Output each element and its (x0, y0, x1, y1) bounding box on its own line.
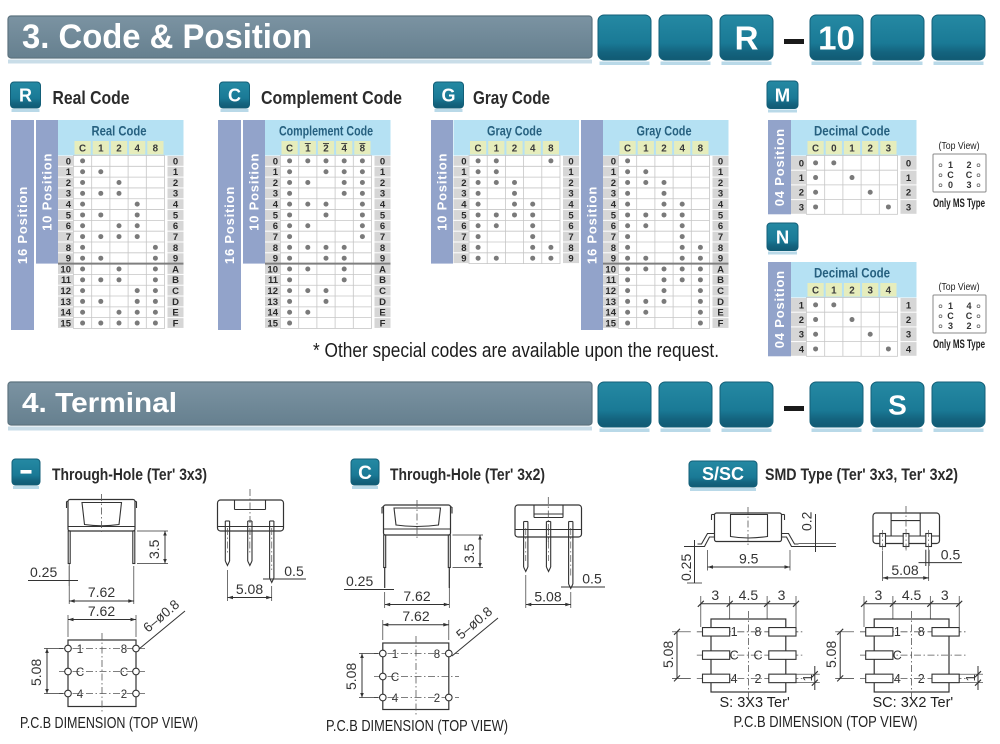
svg-text:0: 0 (173, 156, 178, 167)
svg-text:A: A (172, 264, 179, 275)
svg-text:2: 2 (66, 178, 71, 189)
svg-text:C: C (358, 463, 372, 484)
svg-text:8: 8 (461, 243, 466, 254)
svg-text:1: 1 (906, 173, 912, 184)
svg-text:C: C (391, 672, 399, 684)
svg-text:Through-Hole (Ter' 3x2): Through-Hole (Ter' 3x2) (390, 465, 545, 484)
svg-text:16 Position: 16 Position (222, 186, 237, 264)
svg-text:Gray Code: Gray Code (487, 123, 542, 139)
svg-text:7.62: 7.62 (403, 588, 430, 604)
svg-text:Through-Hole (Ter' 3x3): Through-Hole (Ter' 3x3) (52, 465, 207, 484)
svg-text:7: 7 (273, 232, 278, 243)
svg-text:2: 2 (611, 178, 616, 189)
svg-text:10 Position: 10 Position (40, 153, 55, 231)
svg-text:2: 2 (380, 178, 385, 189)
svg-text:8: 8 (718, 243, 723, 254)
svg-text:0.25: 0.25 (346, 573, 373, 589)
svg-text:4: 4 (392, 693, 399, 705)
svg-text:8: 8 (173, 243, 178, 254)
svg-text:4: 4 (341, 144, 347, 155)
svg-text:5.08: 5.08 (28, 659, 44, 686)
svg-text:0: 0 (718, 156, 723, 167)
svg-text:3: 3 (867, 286, 873, 297)
svg-text:C: C (286, 144, 293, 155)
svg-text:5.08: 5.08 (891, 562, 918, 578)
svg-text:5: 5 (66, 210, 72, 221)
svg-text:C: C (76, 667, 84, 679)
svg-text:1: 1 (799, 173, 805, 184)
svg-text:8: 8 (153, 144, 159, 155)
svg-text:0: 0 (611, 156, 616, 167)
svg-text:1: 1 (643, 144, 649, 155)
svg-text:5.08: 5.08 (823, 641, 839, 668)
svg-text:8: 8 (611, 243, 616, 254)
svg-text:2: 2 (867, 144, 873, 155)
svg-text:0: 0 (906, 158, 911, 169)
svg-text:4.5: 4.5 (902, 587, 922, 603)
svg-text:8: 8 (66, 243, 71, 254)
svg-text:4: 4 (568, 200, 574, 211)
svg-text:SMD Type (Ter' 3x3, Ter' 3x2): SMD Type (Ter' 3x3, Ter' 3x2) (765, 465, 958, 484)
svg-text:C: C (947, 311, 954, 321)
svg-text:3: 3 (906, 202, 911, 213)
svg-text:3: 3 (886, 144, 892, 155)
svg-text:4.5: 4.5 (739, 587, 759, 603)
svg-text:R: R (735, 19, 759, 56)
svg-text:5.08: 5.08 (534, 589, 561, 605)
svg-text:4: 4 (77, 689, 84, 701)
svg-text:16 Position: 16 Position (15, 186, 30, 264)
svg-text:7: 7 (718, 232, 723, 243)
svg-text:C: C (475, 144, 482, 155)
svg-text:Real Code: Real Code (92, 123, 147, 139)
svg-text:7: 7 (173, 232, 178, 243)
svg-text:G: G (441, 85, 455, 105)
svg-text:3: 3 (380, 189, 385, 200)
svg-text:D: D (717, 297, 724, 308)
svg-text:11: 11 (61, 275, 72, 286)
svg-text:1: 1 (611, 167, 617, 178)
svg-text:C: C (172, 286, 179, 297)
svg-text:1: 1 (305, 144, 311, 155)
svg-text:3: 3 (966, 180, 971, 190)
svg-text:2: 2 (966, 160, 971, 170)
svg-text:Gray Code: Gray Code (637, 123, 692, 139)
svg-text:3: 3 (611, 189, 616, 200)
svg-text:2: 2 (799, 315, 804, 326)
svg-text:B: B (172, 275, 179, 286)
svg-text:6: 6 (461, 221, 466, 232)
svg-text:9: 9 (568, 254, 573, 265)
svg-text:P.C.B DIMENSION (TOP VIEW): P.C.B DIMENSION (TOP VIEW) (734, 714, 918, 731)
svg-text:C: C (228, 85, 241, 105)
svg-text:2: 2 (273, 178, 278, 189)
svg-text:Only MS Type: Only MS Type (933, 339, 985, 351)
svg-text:8: 8 (380, 243, 385, 254)
svg-text:2: 2 (121, 689, 127, 701)
svg-text:2: 2 (461, 178, 466, 189)
svg-text:A: A (717, 264, 724, 275)
svg-text:0.5: 0.5 (284, 563, 304, 579)
svg-text:Gray Code: Gray Code (473, 87, 550, 108)
svg-text:1: 1 (948, 160, 953, 170)
svg-text:1: 1 (800, 674, 815, 681)
svg-text:2: 2 (512, 144, 518, 155)
svg-text:4: 4 (273, 200, 279, 211)
svg-text:3: 3 (568, 189, 573, 200)
svg-text:C: C (947, 170, 954, 180)
svg-text:Decimal Code: Decimal Code (814, 123, 890, 139)
svg-text:6: 6 (611, 221, 616, 232)
svg-text:E: E (717, 308, 723, 319)
svg-text:3.5: 3.5 (461, 543, 477, 563)
svg-text:6: 6 (718, 221, 723, 232)
svg-text:C: C (624, 144, 631, 155)
svg-text:8: 8 (360, 144, 366, 155)
svg-text:1: 1 (718, 167, 724, 178)
svg-text:C: C (753, 649, 762, 663)
svg-text:4: 4 (679, 144, 685, 155)
svg-text:14: 14 (60, 308, 71, 319)
svg-text:B: B (717, 275, 724, 286)
svg-text:5.08: 5.08 (236, 581, 263, 597)
svg-text:11: 11 (268, 275, 279, 286)
svg-text:* Other special codes are avai: * Other special codes are available upon… (313, 340, 719, 362)
svg-text:15: 15 (60, 318, 71, 329)
svg-text:1: 1 (906, 300, 912, 311)
svg-text:14: 14 (267, 308, 278, 319)
svg-text:D: D (172, 297, 179, 308)
svg-text:3. Code & Position: 3. Code & Position (22, 18, 312, 56)
svg-text:04 Position: 04 Position (772, 270, 787, 348)
svg-text:8: 8 (918, 625, 925, 639)
svg-text:6–ø0.8: 6–ø0.8 (140, 597, 182, 636)
svg-text:2: 2 (173, 178, 178, 189)
svg-text:Complement Code: Complement Code (261, 87, 402, 108)
svg-text:4. Terminal: 4. Terminal (22, 387, 177, 418)
svg-text:1: 1 (273, 167, 279, 178)
svg-text:1: 1 (494, 144, 500, 155)
svg-text:C: C (893, 649, 902, 663)
svg-text:S: 3X3 Ter': S: 3X3 Ter' (720, 695, 790, 711)
svg-text:F: F (380, 318, 386, 329)
svg-text:0: 0 (273, 156, 278, 167)
svg-text:5.08: 5.08 (343, 663, 359, 690)
svg-text:4: 4 (894, 672, 901, 686)
svg-text:1: 1 (894, 625, 901, 639)
svg-text:0: 0 (568, 156, 573, 167)
svg-text:2: 2 (966, 321, 971, 331)
svg-text:12: 12 (267, 286, 278, 297)
svg-text:1: 1 (77, 644, 83, 656)
svg-text:3: 3 (799, 202, 804, 213)
svg-text:Decimal Code: Decimal Code (814, 265, 890, 281)
svg-text:5.08: 5.08 (660, 641, 676, 668)
svg-text:1: 1 (173, 167, 179, 178)
svg-text:1: 1 (731, 625, 738, 639)
svg-text:3: 3 (711, 587, 719, 603)
svg-text:S/SC: S/SC (702, 464, 744, 484)
svg-text:1: 1 (568, 167, 574, 178)
svg-text:4: 4 (731, 672, 738, 686)
svg-text:8: 8 (568, 243, 573, 254)
svg-text:6: 6 (568, 221, 573, 232)
svg-text:4: 4 (718, 200, 724, 211)
svg-text:10: 10 (267, 264, 278, 275)
svg-text:R: R (19, 85, 32, 105)
svg-text:6: 6 (66, 221, 71, 232)
svg-text:1: 1 (799, 300, 805, 311)
svg-text:1: 1 (98, 144, 104, 155)
svg-text:5: 5 (380, 210, 386, 221)
svg-text:3: 3 (718, 189, 723, 200)
svg-text:0: 0 (948, 180, 953, 190)
svg-text:7: 7 (568, 232, 573, 243)
svg-text:3: 3 (948, 321, 953, 331)
svg-text:(Top View): (Top View) (939, 140, 980, 152)
svg-text:0: 0 (380, 156, 385, 167)
svg-text:2: 2 (849, 286, 855, 297)
svg-text:0: 0 (831, 144, 837, 155)
svg-text:5: 5 (611, 210, 617, 221)
svg-text:7: 7 (380, 232, 385, 243)
svg-text:8: 8 (755, 625, 762, 639)
svg-text:13: 13 (60, 297, 71, 308)
svg-text:4: 4 (886, 286, 892, 297)
svg-text:Only MS Type: Only MS Type (933, 198, 985, 210)
svg-text:13: 13 (267, 297, 278, 308)
svg-text:6: 6 (173, 221, 178, 232)
svg-text:0: 0 (461, 156, 466, 167)
svg-text:04 Position: 04 Position (772, 128, 787, 206)
svg-text:10: 10 (818, 19, 855, 56)
svg-text:2: 2 (434, 693, 440, 705)
svg-text:10 Position: 10 Position (247, 153, 262, 231)
svg-text:4: 4 (173, 200, 179, 211)
svg-text:5: 5 (273, 210, 279, 221)
svg-text:7.62: 7.62 (88, 584, 115, 600)
svg-text:C: C (717, 286, 724, 297)
svg-text:2: 2 (906, 188, 911, 199)
svg-text:C: C (812, 286, 819, 297)
svg-text:2: 2 (116, 144, 122, 155)
svg-text:4: 4 (611, 200, 617, 211)
svg-text:7.62: 7.62 (88, 603, 115, 619)
svg-text:4: 4 (799, 344, 805, 355)
svg-text:M: M (775, 84, 790, 105)
svg-text:5: 5 (173, 210, 179, 221)
svg-text:15: 15 (605, 318, 616, 329)
svg-text:N: N (776, 226, 789, 247)
svg-text:S: S (888, 390, 907, 421)
svg-text:1: 1 (66, 167, 72, 178)
svg-text:7.62: 7.62 (402, 608, 429, 624)
svg-text:1: 1 (849, 144, 855, 155)
svg-text:2: 2 (906, 315, 911, 326)
svg-text:3: 3 (875, 587, 883, 603)
svg-text:3: 3 (461, 189, 466, 200)
svg-text:2: 2 (661, 144, 667, 155)
svg-text:SC: 3X2 Ter': SC: 3X2 Ter' (873, 695, 954, 711)
svg-text:5: 5 (718, 210, 724, 221)
svg-text:E: E (172, 308, 178, 319)
svg-text:E: E (379, 308, 385, 319)
svg-text:3: 3 (799, 330, 804, 341)
svg-text:F: F (718, 318, 724, 329)
svg-text:4: 4 (380, 200, 386, 211)
svg-text:0: 0 (799, 158, 804, 169)
svg-text:P.C.B DIMENSION (TOP VIEW): P.C.B DIMENSION (TOP VIEW) (326, 718, 508, 735)
svg-text:C: C (812, 144, 819, 155)
svg-text:4: 4 (906, 344, 912, 355)
svg-text:11: 11 (606, 275, 617, 286)
svg-text:13: 13 (605, 297, 616, 308)
svg-text:5: 5 (461, 210, 467, 221)
svg-text:10: 10 (605, 264, 616, 275)
svg-text:3: 3 (778, 587, 786, 603)
svg-text:0.2: 0.2 (799, 511, 815, 531)
svg-text:Real Code: Real Code (53, 87, 130, 108)
svg-text:4: 4 (966, 301, 971, 311)
svg-text:3: 3 (66, 189, 71, 200)
svg-text:12: 12 (605, 286, 616, 297)
svg-text:3.5: 3.5 (146, 539, 162, 559)
svg-text:1: 1 (392, 649, 398, 661)
svg-text:C: C (379, 286, 386, 297)
svg-text:2: 2 (323, 144, 329, 155)
svg-text:4: 4 (530, 144, 536, 155)
svg-text:8: 8 (548, 144, 554, 155)
svg-text:12: 12 (60, 286, 71, 297)
svg-text:3: 3 (173, 189, 178, 200)
svg-text:P.C.B DIMENSION (TOP VIEW): P.C.B DIMENSION (TOP VIEW) (20, 715, 198, 732)
svg-text:3: 3 (273, 189, 278, 200)
svg-text:16 Position: 16 Position (585, 186, 600, 264)
svg-text:7: 7 (461, 232, 466, 243)
svg-text:3: 3 (941, 587, 949, 603)
svg-text:(Top View): (Top View) (939, 281, 980, 293)
svg-text:A: A (379, 264, 386, 275)
svg-text:F: F (173, 318, 179, 329)
svg-text:8: 8 (434, 649, 440, 661)
svg-text:3: 3 (906, 330, 911, 341)
svg-text:14: 14 (605, 308, 616, 319)
svg-text:C: C (966, 170, 973, 180)
svg-text:0.5: 0.5 (582, 571, 602, 587)
svg-text:6: 6 (273, 221, 278, 232)
svg-text:8: 8 (698, 144, 704, 155)
svg-text:2: 2 (568, 178, 573, 189)
svg-text:Complement Code: Complement Code (279, 123, 373, 139)
svg-text:1: 1 (831, 286, 837, 297)
svg-text:C: C (120, 667, 128, 679)
svg-text:B: B (379, 275, 386, 286)
svg-text:10 Position: 10 Position (435, 153, 450, 231)
svg-text:9.5: 9.5 (739, 551, 759, 567)
svg-text:2: 2 (718, 178, 723, 189)
svg-text:4: 4 (134, 144, 140, 155)
svg-text:5: 5 (568, 210, 574, 221)
svg-text:4: 4 (461, 200, 467, 211)
svg-text:15: 15 (267, 318, 278, 329)
svg-text:6: 6 (380, 221, 385, 232)
svg-text:1: 1 (461, 167, 467, 178)
svg-text:7: 7 (611, 232, 616, 243)
svg-text:0.5: 0.5 (941, 547, 961, 563)
svg-text:C: C (79, 144, 86, 155)
svg-text:4: 4 (66, 200, 72, 211)
svg-text:2: 2 (918, 672, 925, 686)
svg-text:C: C (730, 649, 739, 663)
svg-text:9: 9 (461, 254, 466, 265)
svg-text:2: 2 (755, 672, 762, 686)
svg-text:0.25: 0.25 (678, 554, 694, 581)
svg-text:C: C (966, 311, 973, 321)
svg-text:5–ø0.8: 5–ø0.8 (453, 604, 495, 643)
svg-text:8: 8 (121, 644, 127, 656)
svg-text:1: 1 (948, 301, 953, 311)
svg-text:1: 1 (963, 674, 978, 681)
svg-text:0.25: 0.25 (30, 564, 57, 580)
svg-text:7: 7 (66, 232, 71, 243)
svg-text:0: 0 (66, 156, 71, 167)
svg-text:10: 10 (60, 264, 71, 275)
svg-text:D: D (379, 297, 386, 308)
svg-text:8: 8 (273, 243, 278, 254)
svg-text:2: 2 (799, 188, 804, 199)
svg-text:1: 1 (380, 167, 386, 178)
